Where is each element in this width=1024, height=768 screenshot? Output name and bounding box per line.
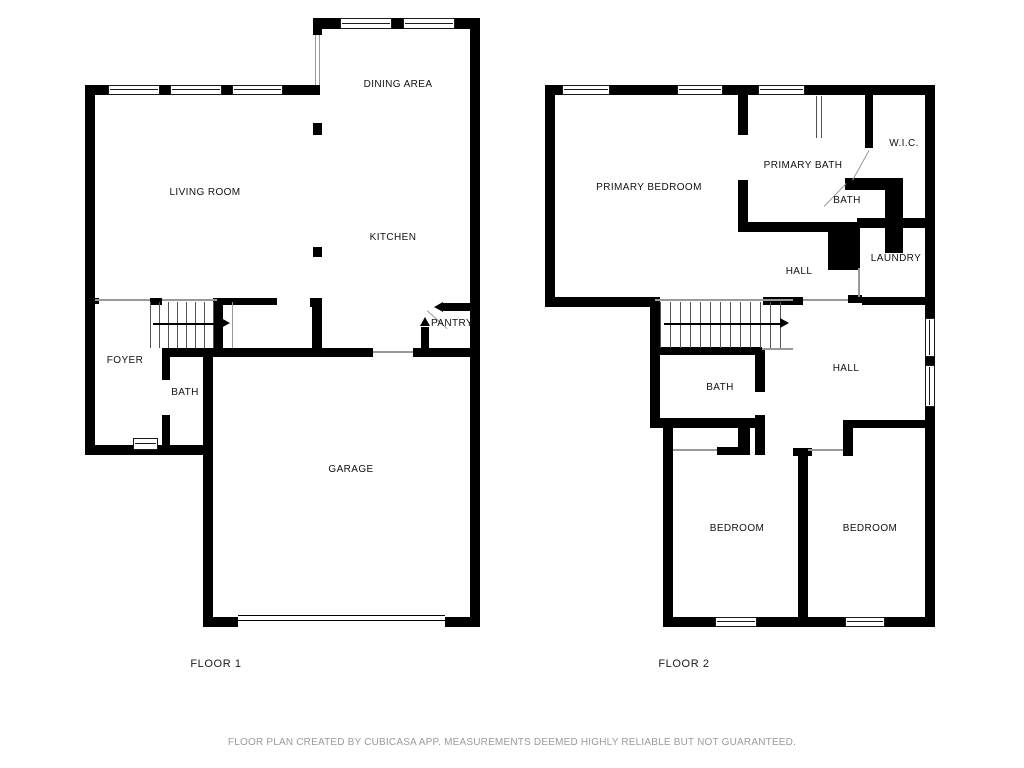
wall-mass: [828, 222, 860, 270]
wall-segment: [413, 348, 473, 357]
floor1-label: FLOOR 1: [190, 658, 241, 670]
door-swing-line: [852, 150, 869, 180]
window: [715, 617, 757, 627]
wall-stub: [313, 123, 322, 135]
pantry-wall-stub: [443, 303, 472, 311]
window: [925, 318, 935, 357]
room-label-hall-lower: HALL: [833, 363, 860, 375]
door-opening: [95, 299, 150, 301]
wall-segment: [545, 85, 555, 307]
wall-segment: [865, 95, 873, 148]
wall-segment: [738, 95, 748, 135]
door-opening: [803, 299, 848, 301]
window: [133, 438, 158, 450]
wall-segment: [798, 448, 808, 627]
wall-segment: [717, 447, 750, 455]
window: [677, 85, 723, 95]
garage-door: [238, 615, 445, 621]
room-label-bath-lower: BATH: [706, 382, 734, 394]
window: [845, 617, 885, 627]
pantry-wall-stub: [421, 327, 429, 349]
wall-segment: [755, 350, 765, 392]
stair-edge-line: [762, 348, 793, 350]
room-label-garage: GARAGE: [328, 464, 373, 476]
floor-plan-canvas: LIVING ROOM DINING AREA KITCHEN PANTRY F…: [0, 0, 1024, 768]
wall-segment: [203, 352, 213, 627]
wall-segment: [848, 420, 935, 428]
room-label-living-room: LIVING ROOM: [169, 187, 240, 199]
room-label-bath-f1: BATH: [171, 387, 199, 399]
wall-segment: [203, 617, 238, 627]
room-label-bath-upper: BATH: [833, 195, 861, 207]
wall-segment: [653, 347, 762, 355]
disclaimer-text: FLOOR PLAN CREATED BY CUBICASA APP. MEAS…: [228, 737, 796, 748]
room-label-primary-bedroom: PRIMARY BEDROOM: [596, 182, 702, 194]
wall-mass: [885, 178, 903, 253]
window: [340, 18, 392, 29]
room-label-primary-bath: PRIMARY BATH: [764, 160, 843, 172]
wall-segment: [162, 348, 373, 357]
door-arrow: [434, 302, 443, 312]
shower-glass: [816, 96, 822, 138]
window: [758, 85, 805, 95]
wall-segment: [862, 297, 935, 305]
door-opening: [373, 351, 413, 353]
stair-direction-line: [153, 323, 223, 325]
window: [562, 85, 610, 95]
staircase-floor1: [150, 302, 222, 348]
window: [108, 85, 160, 95]
wall-segment: [85, 85, 95, 455]
wall-segment: [162, 352, 170, 380]
window: [925, 365, 935, 407]
window: [232, 85, 283, 95]
stair-direction-line: [664, 323, 782, 325]
wall-segment: [162, 415, 170, 445]
floor2-label: FLOOR 2: [658, 658, 709, 670]
room-label-bedroom-left: BEDROOM: [710, 523, 764, 535]
door-opening: [858, 268, 860, 297]
wall-segment: [445, 617, 480, 627]
wall-segment: [545, 297, 660, 307]
room-label-foyer: FOYER: [107, 355, 143, 367]
stair-edge-line: [655, 299, 793, 301]
wall-segment: [663, 420, 673, 627]
door-opening: [673, 449, 717, 451]
room-label-kitchen: KITCHEN: [370, 232, 417, 244]
room-label-hall-upper: HALL: [786, 266, 813, 278]
staircase-floor2: [660, 302, 790, 348]
wall-segment: [217, 298, 277, 305]
wall-segment: [857, 218, 935, 228]
window: [403, 18, 455, 29]
room-label-laundry: LAUNDRY: [871, 253, 921, 265]
wall-segment: [313, 18, 322, 35]
wall-segment: [650, 300, 660, 428]
door-opening: [808, 449, 843, 451]
room-label-bedroom-right: BEDROOM: [843, 523, 897, 535]
wall-stub: [313, 247, 322, 257]
room-label-dining-area: DINING AREA: [364, 79, 433, 91]
window: [170, 85, 222, 95]
room-label-wic: W.I.C.: [889, 138, 919, 150]
door-arrow: [420, 317, 430, 326]
room-label-pantry: PANTRY: [431, 318, 473, 330]
stair-landing-line: [232, 302, 233, 348]
stair-direction-arrow: [221, 318, 230, 328]
open-partition-line: [315, 35, 320, 85]
stair-edge-line: [162, 299, 217, 301]
stair-direction-arrow: [780, 318, 789, 328]
